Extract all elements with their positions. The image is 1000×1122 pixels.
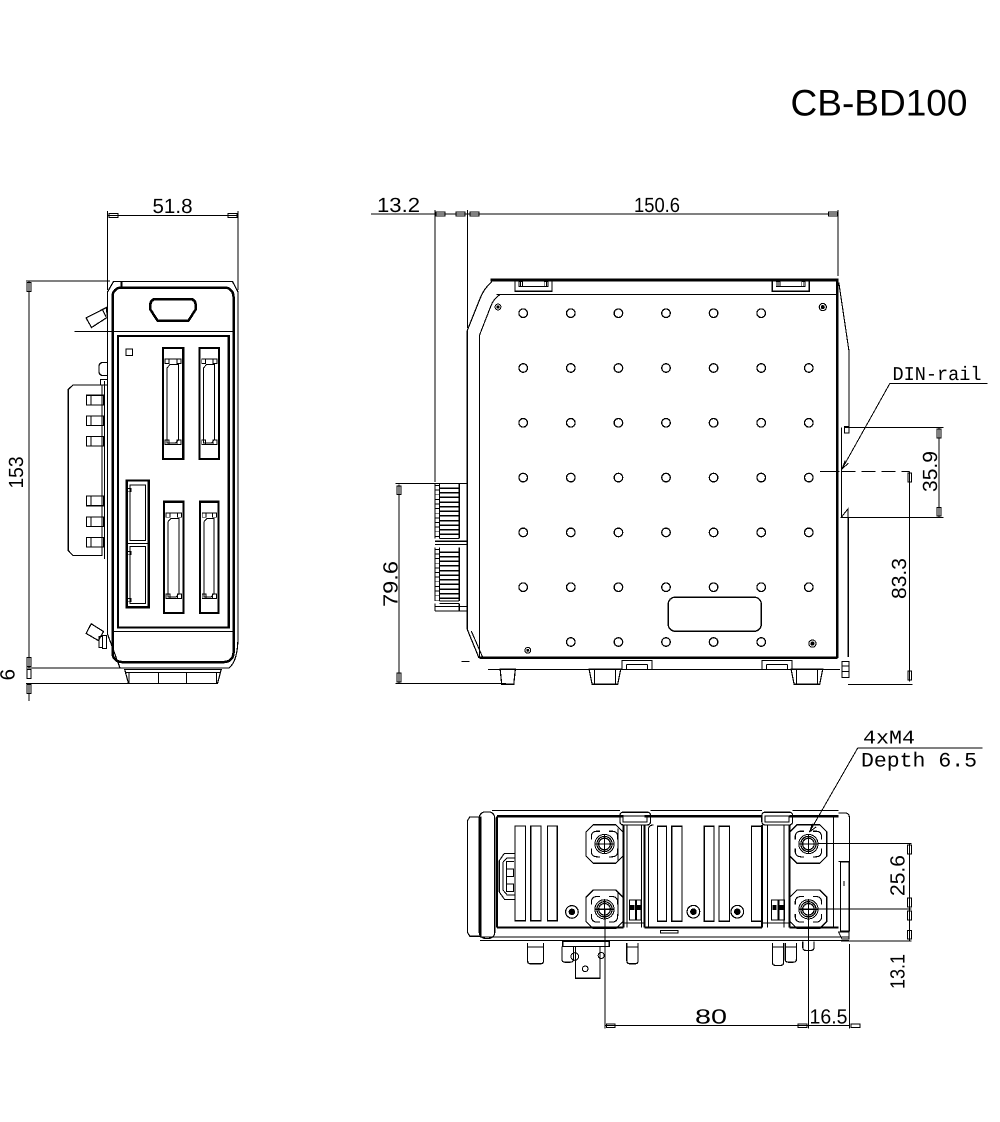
svg-text:153: 153 bbox=[5, 457, 28, 489]
svg-text:35.9: 35.9 bbox=[919, 451, 942, 492]
svg-text:80: 80 bbox=[695, 1006, 727, 1029]
svg-text:25.6: 25.6 bbox=[887, 855, 910, 896]
svg-text:4xM4: 4xM4 bbox=[863, 728, 915, 750]
svg-text:DIN-rail: DIN-rail bbox=[893, 364, 982, 386]
svg-text:16.5: 16.5 bbox=[810, 1006, 848, 1029]
svg-text:51.8: 51.8 bbox=[153, 195, 193, 218]
svg-text:13.1: 13.1 bbox=[887, 954, 910, 989]
svg-text:6: 6 bbox=[0, 669, 20, 680]
svg-text:CB-BD100: CB-BD100 bbox=[791, 83, 968, 124]
svg-text:Depth 6.5: Depth 6.5 bbox=[861, 751, 977, 774]
svg-text:83.3: 83.3 bbox=[888, 558, 911, 599]
